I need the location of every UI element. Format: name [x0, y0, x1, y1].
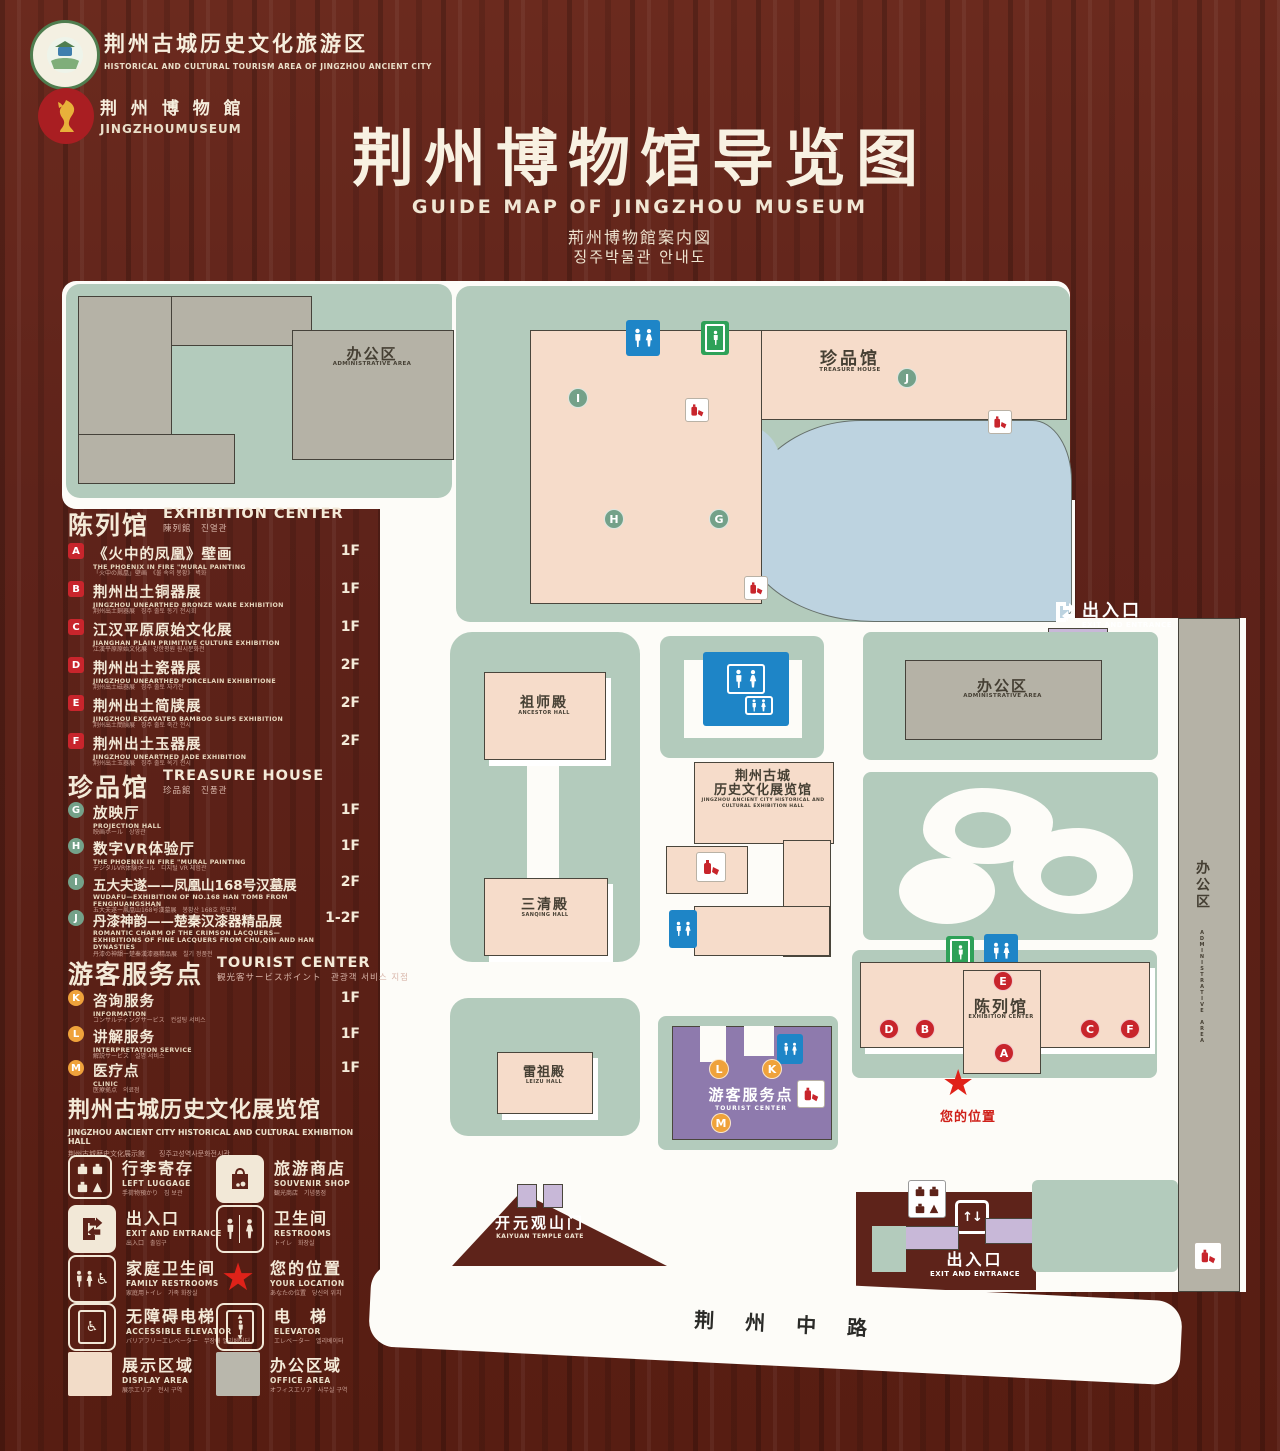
south-exit-arrows-icon: ↑↓	[955, 1200, 989, 1234]
legend-restrooms: 卫生间RESTROOMSトイレ 화장실	[216, 1205, 331, 1253]
garden-island-2	[1041, 856, 1097, 896]
map-marker-L: L	[709, 1059, 729, 1079]
badge-E: E	[68, 695, 84, 711]
road-label: 荆 州 中 路	[694, 1304, 880, 1342]
map-marker-A: A	[994, 1043, 1014, 1063]
badge-K: K	[68, 990, 84, 1006]
ancestor-hall-label: 祖师殿 ANCESTOR HALL	[484, 696, 604, 717]
treasure-lake	[742, 420, 1072, 622]
map-marker-B: B	[915, 1019, 935, 1039]
legend-souvenir-shop: 旅游商店SOUVENIR SHOP観光商店 기념품점	[216, 1155, 350, 1203]
south-exit-label: 出入口 EXIT AND ENTRANCE	[905, 1246, 1045, 1278]
map-marker-E: E	[993, 971, 1013, 991]
badge-A: A	[68, 543, 84, 559]
map-marker-F: F	[1120, 1019, 1140, 1039]
kaiyuan-gate-right	[543, 1184, 563, 1208]
garden-island-1	[955, 812, 1011, 848]
tourism-logo-emblem	[45, 35, 85, 75]
gate-south-2	[985, 1218, 1037, 1244]
page-title-jp: 荊州博物館案内図	[0, 224, 1280, 248]
your-location-star-icon: ★	[216, 1255, 260, 1299]
restroom-sign-jz-hall	[669, 910, 697, 948]
guide-map-poster: { "header": { "logo1": {"title":"荆州古城历史文…	[0, 0, 1280, 1451]
garden-path-3	[899, 858, 995, 924]
office-area-swatch	[216, 1352, 260, 1396]
section-treasure-title: 珍品馆	[68, 768, 149, 804]
badge-M: M	[68, 1060, 84, 1076]
list-item-J: J 丹漆神韵——楚秦汉漆器精品展ROMANTIC CHARM OF THE CR…	[68, 910, 360, 958]
display-area-swatch	[68, 1352, 112, 1396]
tourism-area-logo	[30, 20, 100, 90]
legend-family-restrooms: ♿ 家庭卫生间FAMILY RESTROOMS家庭用トイレ 가족 화장실	[68, 1255, 219, 1303]
legend-your-location: ★ 您的位置YOUR LOCATIONあなたの位置 당신의 위치	[216, 1255, 345, 1299]
exit-ne-icon	[1052, 600, 1076, 624]
admin-nw-label: 办公区 ADMINISTRATIVE AREA	[292, 346, 452, 368]
list-item-C: C 江汉平原原始文化展JIANGHAN PLAIN PRIMITIVE CULT…	[68, 619, 360, 654]
restroom-sign-tourist	[777, 1034, 803, 1064]
wheelchair-glyph: ♿	[96, 1272, 109, 1287]
area-south-lawn-small	[872, 1226, 906, 1272]
jz-hall-bottombar	[694, 906, 830, 956]
section-treasure-header: 珍品馆 TREASURE HOUSE珍品館 진품관	[68, 768, 324, 804]
elevator-sign-treasure	[701, 321, 729, 355]
badge-L: L	[68, 1026, 84, 1042]
extinguisher-icon-treasure-2	[988, 410, 1012, 434]
list-item-H: H 数字VR体验厅THE PHOENIX IN FIRE "MURAL PAIN…	[68, 838, 360, 873]
exit-ne-label: 出入口 EXIT AND ENTRANCE	[1082, 596, 1172, 629]
map-marker-G: G	[709, 509, 729, 529]
section-exhibition-title: 陈列馆	[68, 506, 149, 542]
admin-e-label: 办公区 ADMINISTRATIVE AREA	[905, 678, 1100, 700]
elevator-icon: ▲ ▼	[216, 1303, 264, 1351]
legend-exit: 出入口EXIT AND ENTRANCE出入口 출입구	[68, 1205, 222, 1253]
tourism-area-logo-text: 荆州古城历史文化旅游区 HISTORICAL AND CULTURAL TOUR…	[104, 28, 432, 71]
souvenir-shop-icon	[216, 1155, 264, 1203]
courtyard-path	[527, 752, 559, 888]
extinguisher-icon-treasure-1	[685, 398, 709, 422]
restroom-sign-central	[703, 652, 789, 726]
exhibition-label: 陈列馆 EXHIBITION CENTER	[940, 998, 1062, 1021]
tourism-area-title: 荆州古城历史文化旅游区	[104, 28, 432, 58]
badge-D: D	[68, 657, 84, 673]
list-item-G: G 放映厅PROJECTION HALL映画ホール 상영관 1F	[68, 802, 360, 837]
legend-office-area: 办公区域OFFICE AREAオフィスエリア 사무실 구역	[216, 1352, 347, 1396]
page-title: 荆州博物馆导览图	[0, 108, 1280, 198]
extinguisher-icon-strip	[1194, 1242, 1222, 1270]
badge-C: C	[68, 619, 84, 635]
badge-J: J	[68, 910, 84, 926]
badge-H: H	[68, 838, 84, 854]
page-title-en: GUIDE MAP OF JINGZHOU MUSEUM	[0, 196, 1280, 218]
accessible-elevator-icon: ♿	[68, 1303, 116, 1351]
list-item-I: I 五大夫遂——凤凰山168号汉墓展WUDAFU—EXHIBITION OF N…	[68, 874, 360, 915]
list-item-D: D 荆州出土瓷器展JINGZHOU UNEARTHED PORCELAIN EX…	[68, 657, 360, 692]
jz-hall-label: 荆州古城 历史文化展览馆 JINGZHOU ANCIENT CITY HISTO…	[690, 770, 836, 809]
admin-strip-label: 办公区 ADMINISTRATIVE AREA	[1192, 860, 1212, 1044]
tourist-center-notch-2	[744, 1026, 774, 1056]
leizu-hall-label: 雷祖殿 LEIZU HALL	[497, 1066, 591, 1085]
map-marker-H: H	[604, 509, 624, 529]
kaiyuan-gate-label: 开元观山门 KAIYUAN TEMPLE GATE	[450, 1212, 630, 1240]
badge-G: G	[68, 802, 84, 818]
your-location-label: 您的位置	[928, 1106, 1008, 1125]
extinguisher-icon-treasure-3	[744, 576, 768, 600]
section-tourist-title: 游客服务点	[68, 955, 203, 991]
map-marker-J: J	[897, 368, 917, 388]
list-item-F: F 荆州出土玉器展JINGZHOU UNEARTHED JADE EXHIBIT…	[68, 733, 360, 768]
restroom-sign-treasure	[626, 320, 660, 356]
tourist-center-notch-1	[700, 1026, 726, 1062]
legend-left-luggage: 行李寄存LEFT LUGGAGE手荷物預かり 짐 보관	[68, 1155, 194, 1199]
hall-heading: 荆州古城历史文化展览馆 JINGZHOU ANCIENT CITY HISTOR…	[68, 1092, 378, 1159]
list-item-K: K 咨询服务INFORMATIONコンサルティングサービス 컨설팅 서비스 1F	[68, 990, 360, 1025]
badge-I: I	[68, 874, 84, 890]
list-item-M: M 医疗点CLINIC医療拠点 의료점 1F	[68, 1060, 360, 1095]
tourism-area-subtitle: HISTORICAL AND CULTURAL TOURISM AREA OF …	[104, 62, 432, 71]
section-tourist-header: 游客服务点 TOURIST CENTER観光客サービスポイント 관광객 서비스 …	[68, 955, 409, 991]
map-marker-I: I	[568, 388, 588, 408]
map-marker-K: K	[762, 1059, 782, 1079]
section-exhibition-header: 陈列馆 EXHIBITION CENTER陳列館 진열관	[68, 506, 344, 542]
extinguisher-icon-tourist	[797, 1080, 825, 1108]
list-item-L: L 讲解服务INTERPRETATION SERVICE解説サービス 설명 서비…	[68, 1026, 360, 1061]
list-item-A: A 《火中的凤凰》壁画THE PHOENIX IN FIRE "MURAL PA…	[68, 543, 360, 578]
left-luggage-map-icon	[908, 1180, 946, 1218]
kaiyuan-gate-left	[517, 1184, 537, 1208]
map-marker-C: C	[1080, 1019, 1100, 1039]
map-marker-D: D	[879, 1019, 899, 1039]
area-south-lawn-east	[1032, 1180, 1178, 1272]
family-restroom-subsign	[745, 696, 773, 715]
map-marker-M: M	[711, 1113, 731, 1133]
badge-F: F	[68, 733, 84, 749]
list-item-B: B 荆州出土铜器展JINGZHOU UNEARTHED BRONZE WARE …	[68, 581, 360, 616]
extinguisher-icon-jz-hall	[696, 852, 726, 882]
sanqing-hall-label: 三清殿 SANQING HALL	[484, 898, 606, 919]
area-garden	[863, 772, 1158, 940]
exit-entrance-icon	[68, 1205, 116, 1253]
page-title-kr: 징주박물관 안내도	[0, 246, 1280, 267]
family-restrooms-icon: ♿	[68, 1255, 116, 1303]
left-luggage-icon	[68, 1155, 112, 1199]
your-location-star: ★	[942, 1066, 974, 1102]
admin-nw-building-bottom	[78, 434, 235, 484]
list-item-E: E 荆州出土简牍展JINGZHOU EXCAVATED BAMBOO SLIPS…	[68, 695, 360, 730]
legend-display-area: 展示区域DISPLAY AREA展示エリア 전시 구역	[68, 1352, 194, 1396]
legend-elevator: ▲ ▼ 电 梯ELEVATORエレベーター 엘리베이터	[216, 1303, 344, 1351]
badge-B: B	[68, 581, 84, 597]
restrooms-icon	[216, 1205, 264, 1253]
